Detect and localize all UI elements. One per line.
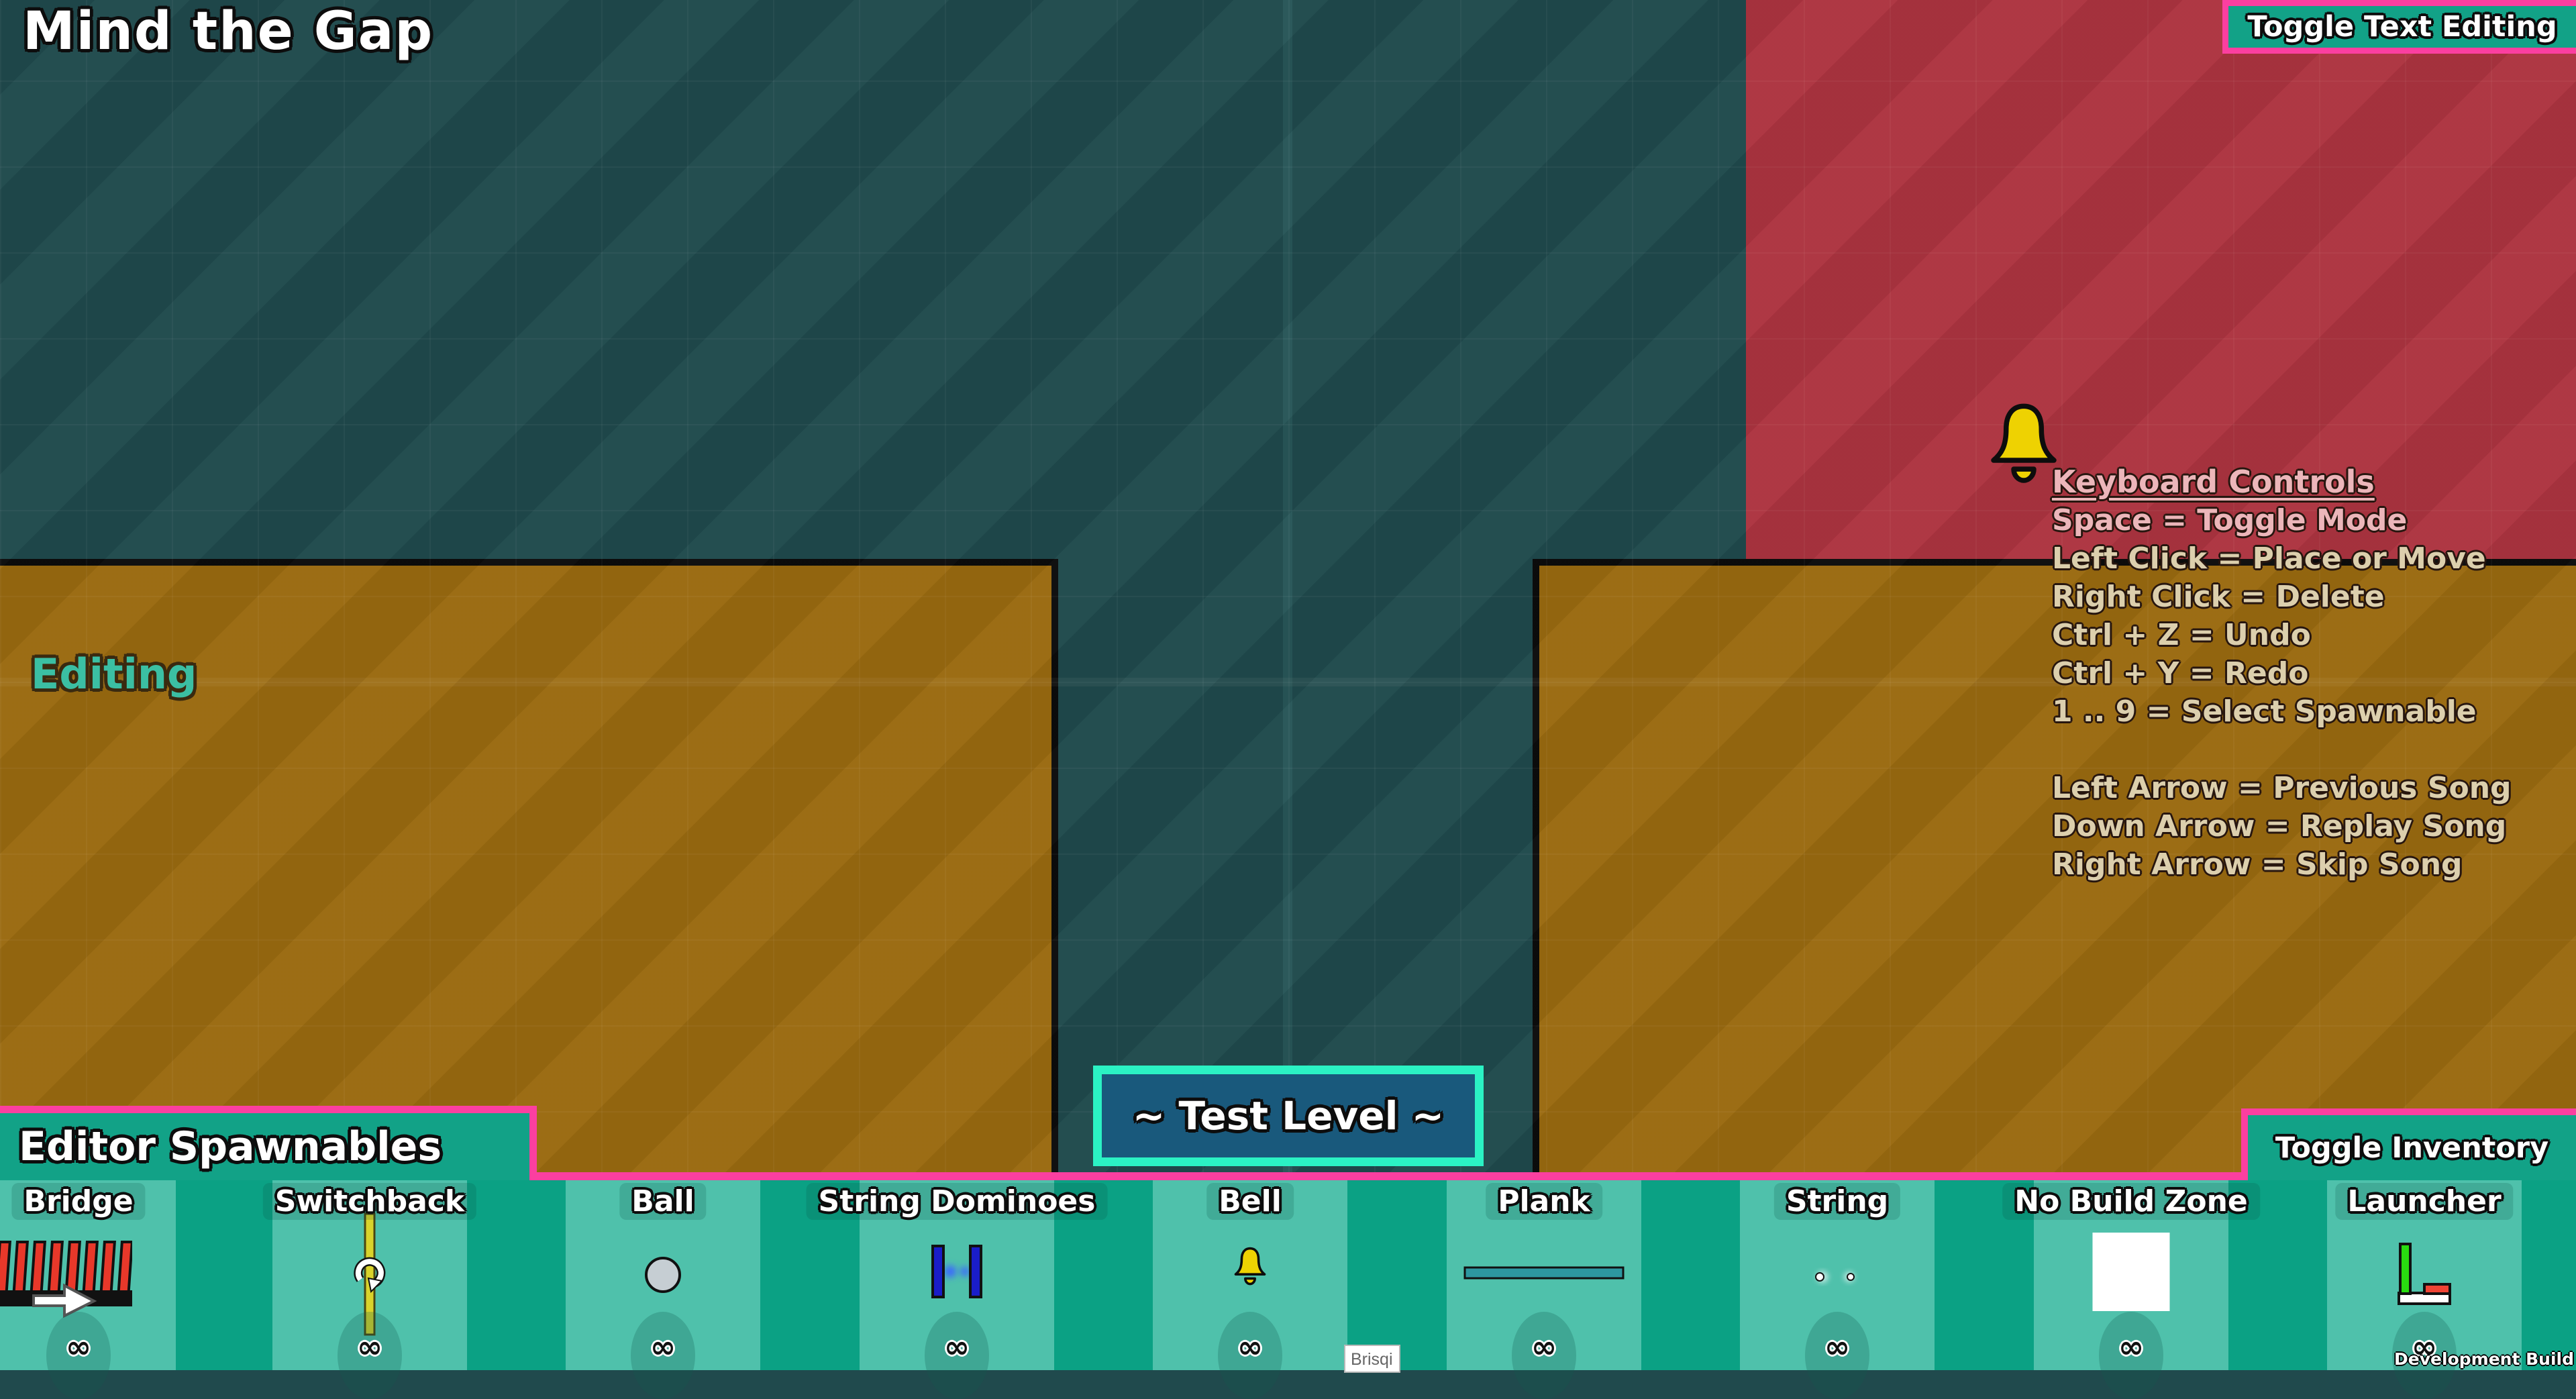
launcher-icon	[2397, 1242, 2452, 1309]
music-help-line: Left Arrow = Previous Song	[2052, 769, 2512, 807]
toggle-text-editing-button[interactable]: Toggle Text Editing	[2222, 0, 2576, 54]
music-help-line: Down Arrow = Replay Song	[2052, 807, 2512, 845]
spawnables-header: Editor Spawnables	[0, 1106, 537, 1180]
spawnable-count: ∞	[944, 1329, 970, 1365]
spawnable-card-launcher[interactable]: Launcher ∞	[2327, 1180, 2522, 1370]
help-line: 1 .. 9 = Select Spawnable	[2052, 692, 2512, 731]
spawnable-count: ∞	[66, 1329, 91, 1365]
spawnable-label: Plank	[1486, 1183, 1602, 1220]
overlay-window-brisqi[interactable]: Brisqi	[1344, 1345, 1400, 1373]
spawnable-label: Bridge	[11, 1183, 145, 1220]
development-build-watermark: Development Build	[2394, 1349, 2574, 1369]
spawnable-card-string-dominoes[interactable]: String Dominoes ∞	[860, 1180, 1054, 1370]
spawnable-label: Ball	[619, 1183, 706, 1220]
spawnable-label: Launcher	[2335, 1183, 2513, 1220]
bridge-icon	[0, 1241, 132, 1320]
spawnable-count: ∞	[1531, 1329, 1557, 1365]
mode-label: Editing	[31, 650, 197, 698]
toggle-inventory-button[interactable]: Toggle Inventory	[2241, 1108, 2576, 1180]
spawnable-label: Bell	[1206, 1183, 1294, 1220]
grid-center-vertical-line	[1283, 0, 1292, 1172]
ball-icon	[643, 1255, 682, 1297]
keyboard-controls-help: Keyboard Controls Space = Toggle Mode Le…	[2052, 463, 2512, 884]
string-dominoes-icon	[929, 1245, 985, 1302]
keyboard-controls-heading: Keyboard Controls	[2052, 463, 2512, 501]
spawnable-count: ∞	[650, 1329, 676, 1365]
level-name: ~ Test Level ~	[1133, 1093, 1445, 1139]
overlay-window-title: Brisqi	[1351, 1350, 1393, 1369]
toggle-text-editing-label: Toggle Text Editing	[2247, 10, 2557, 44]
game-title: Mind the Gap	[23, 1, 433, 62]
level-name-badge: ~ Test Level ~	[1093, 1066, 1484, 1166]
bell-icon	[1230, 1246, 1270, 1296]
spawnable-card-ball[interactable]: Ball ∞	[566, 1180, 760, 1370]
spawnables-header-label: Editor Spawnables	[19, 1123, 442, 1170]
spawnable-label: Switchback	[263, 1183, 476, 1220]
spawnable-label: No Build Zone	[2002, 1183, 2260, 1220]
help-line: Ctrl + Y = Redo	[2052, 654, 2512, 692]
spawnable-card-bridge[interactable]: Bridge ∞	[0, 1180, 176, 1370]
spawnable-card-bell[interactable]: Bell ∞	[1153, 1180, 1347, 1370]
spawnable-count: ∞	[357, 1329, 382, 1365]
no-build-zone-icon	[2093, 1233, 2170, 1311]
spawnable-card-switchback[interactable]: Switchback ∞	[272, 1180, 467, 1370]
spawnable-count: ∞	[1237, 1329, 1263, 1365]
help-line: Left Click = Place or Move	[2052, 539, 2512, 578]
toggle-inventory-label: Toggle Inventory	[2275, 1131, 2548, 1165]
help-line: Right Click = Delete	[2052, 578, 2512, 616]
help-line: Space = Toggle Mode	[2052, 501, 2512, 539]
spawnable-card-plank[interactable]: Plank ∞	[1447, 1180, 1641, 1370]
help-line: Ctrl + Z = Undo	[2052, 616, 2512, 654]
string-icon	[1810, 1267, 1864, 1289]
spawnable-card-string[interactable]: String ∞	[1740, 1180, 1935, 1370]
spawnable-label: String Dominoes	[807, 1183, 1108, 1220]
spawnables-inventory-panel: Bridge ∞ Switchback	[0, 1172, 2576, 1370]
spawnable-count: ∞	[2118, 1329, 2144, 1365]
spawnable-label: String	[1774, 1183, 1900, 1220]
spawnable-count: ∞	[1824, 1329, 1850, 1365]
plank-icon	[1463, 1266, 1625, 1284]
music-help-line: Right Arrow = Skip Song	[2052, 845, 2512, 884]
spawnable-card-no-build-zone[interactable]: No Build Zone ∞	[2034, 1180, 2228, 1370]
